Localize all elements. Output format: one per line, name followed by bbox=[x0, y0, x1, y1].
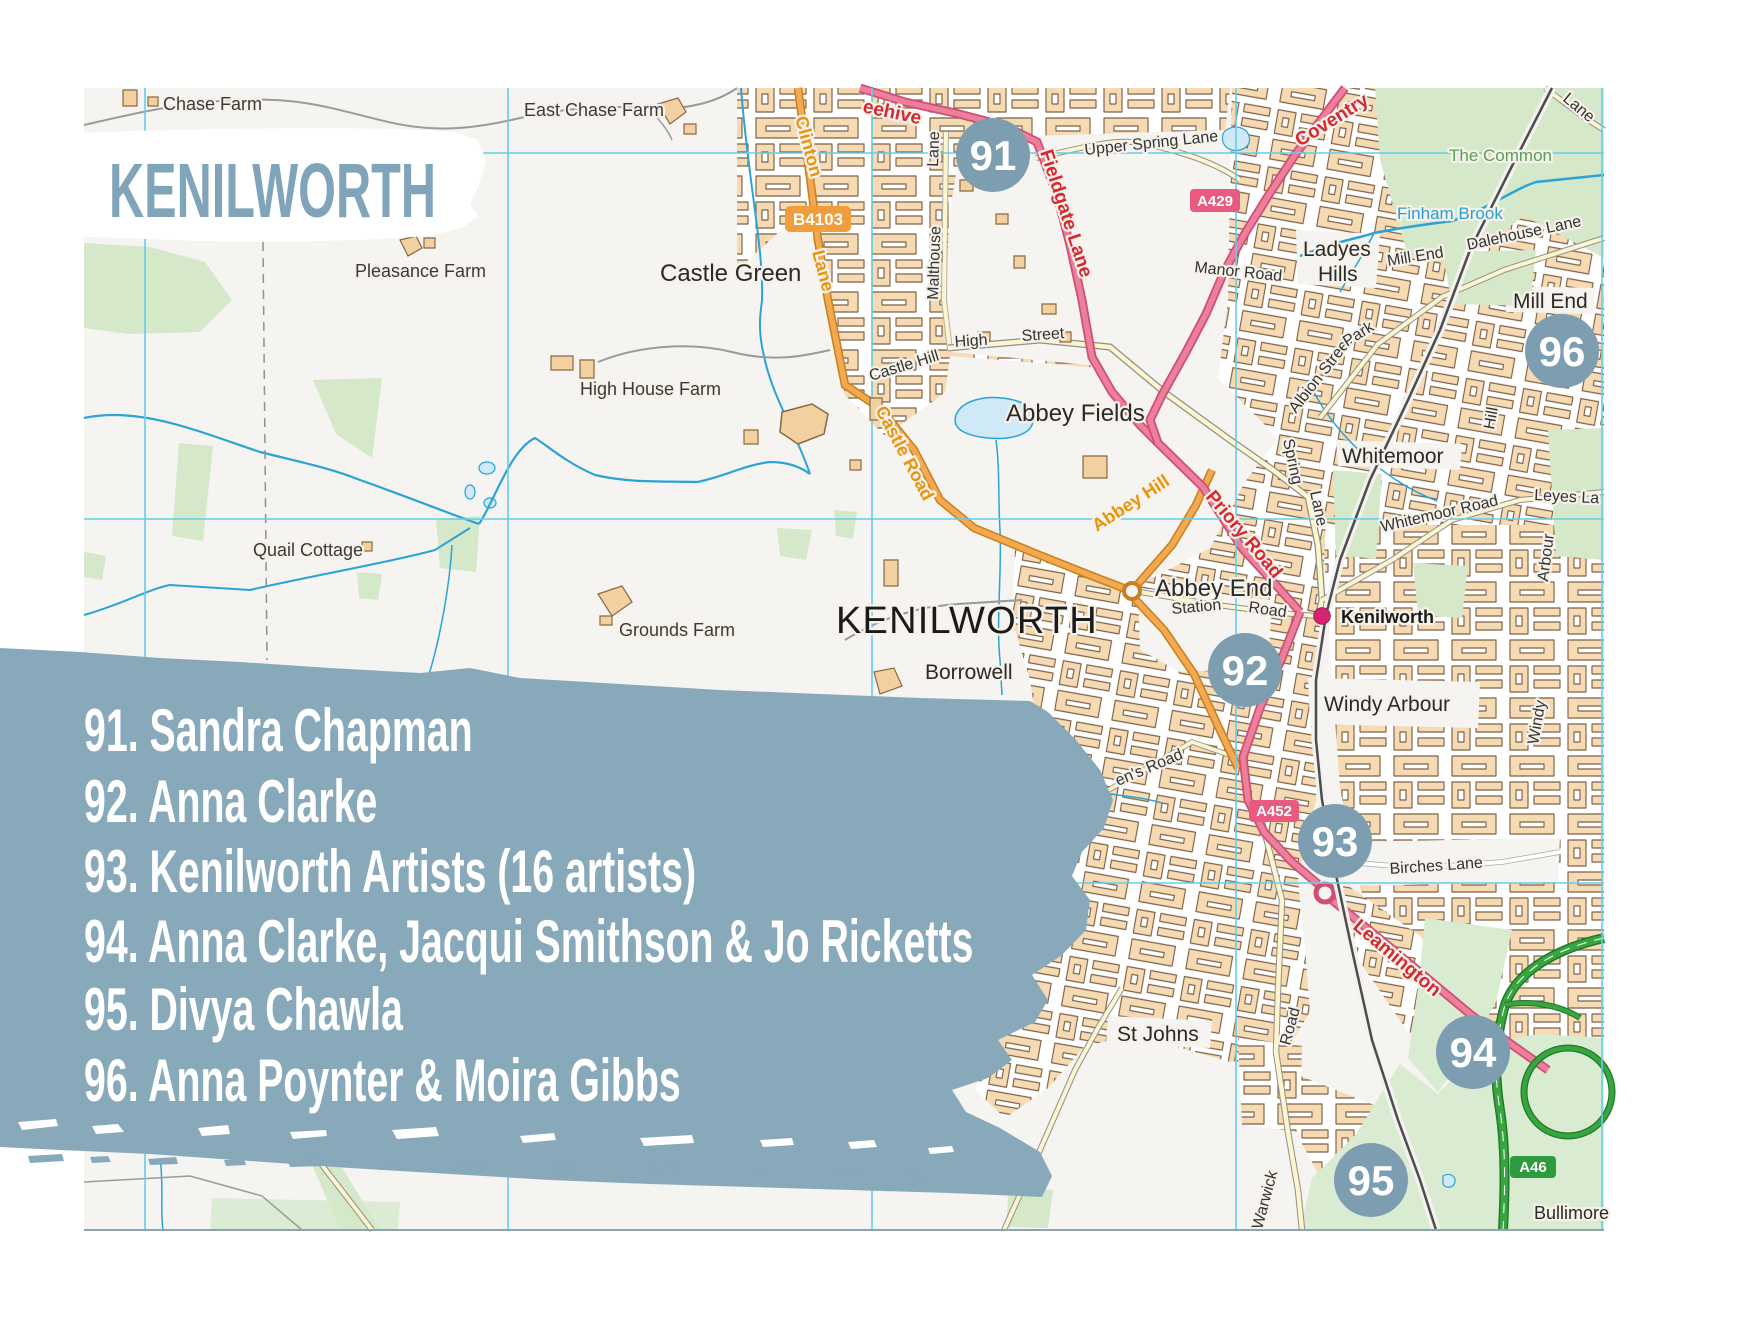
svg-text:Finham Brook: Finham Brook bbox=[1397, 204, 1503, 223]
svg-text:95: 95 bbox=[1348, 1157, 1395, 1204]
svg-text:East Chase Farm: East Chase Farm bbox=[524, 100, 664, 120]
svg-text:Malthouse: Malthouse bbox=[925, 226, 945, 300]
svg-text:Castle Green: Castle Green bbox=[660, 260, 801, 287]
svg-text:B4103: B4103 bbox=[793, 210, 843, 229]
svg-text:Borrowell: Borrowell bbox=[925, 661, 1013, 684]
svg-text:Kenilworth: Kenilworth bbox=[1341, 607, 1434, 627]
svg-text:A429: A429 bbox=[1197, 193, 1233, 210]
svg-text:Grounds Farm: Grounds Farm bbox=[619, 620, 735, 640]
svg-text:Pleasance Farm: Pleasance Farm bbox=[355, 261, 486, 281]
svg-text:94. Anna Clarke, Jacqui Smiths: 94. Anna Clarke, Jacqui Smithson & Jo Ri… bbox=[84, 908, 973, 975]
svg-text:Hills: Hills bbox=[1318, 263, 1358, 286]
svg-text:Windy Arbour: Windy Arbour bbox=[1324, 693, 1450, 716]
svg-text:93. Kenilworth Artists (16 art: 93. Kenilworth Artists (16 artists) bbox=[84, 838, 696, 905]
svg-text:92. Anna Clarke: 92. Anna Clarke bbox=[84, 768, 377, 835]
svg-text:High House Farm: High House Farm bbox=[580, 379, 721, 399]
svg-text:High: High bbox=[954, 332, 988, 351]
svg-text:Leyes La: Leyes La bbox=[1534, 487, 1600, 507]
svg-text:A46: A46 bbox=[1519, 1159, 1547, 1176]
svg-text:KENILWORTH: KENILWORTH bbox=[109, 148, 436, 234]
svg-text:93: 93 bbox=[1312, 818, 1359, 865]
svg-text:95. Divya Chawla: 95. Divya Chawla bbox=[84, 976, 403, 1043]
svg-text:St Johns: St Johns bbox=[1117, 1023, 1199, 1046]
svg-text:KENILWORTH: KENILWORTH bbox=[836, 600, 1098, 642]
svg-text:Abbey Fields: Abbey Fields bbox=[1006, 400, 1145, 427]
svg-text:The Common: The Common bbox=[1449, 146, 1552, 165]
svg-text:91: 91 bbox=[970, 132, 1017, 179]
svg-text:Whitemoor: Whitemoor bbox=[1342, 445, 1444, 468]
svg-text:91. Sandra Chapman: 91. Sandra Chapman bbox=[84, 697, 473, 764]
svg-text:Ladyes: Ladyes bbox=[1303, 238, 1371, 261]
svg-text:94: 94 bbox=[1450, 1029, 1497, 1076]
svg-text:Mill End: Mill End bbox=[1513, 290, 1588, 313]
svg-text:Quail Cottage: Quail Cottage bbox=[253, 540, 363, 560]
svg-text:96: 96 bbox=[1539, 328, 1586, 375]
svg-text:A452: A452 bbox=[1256, 803, 1292, 820]
svg-text:Lane: Lane bbox=[925, 131, 943, 167]
svg-text:Chase Farm: Chase Farm bbox=[163, 94, 262, 114]
svg-text:Bullimore: Bullimore bbox=[1534, 1203, 1609, 1223]
svg-text:96. Anna Poynter & Moira Gibbs: 96. Anna Poynter & Moira Gibbs bbox=[84, 1047, 681, 1114]
svg-text:Street: Street bbox=[1021, 325, 1065, 345]
svg-text:92: 92 bbox=[1222, 647, 1269, 694]
